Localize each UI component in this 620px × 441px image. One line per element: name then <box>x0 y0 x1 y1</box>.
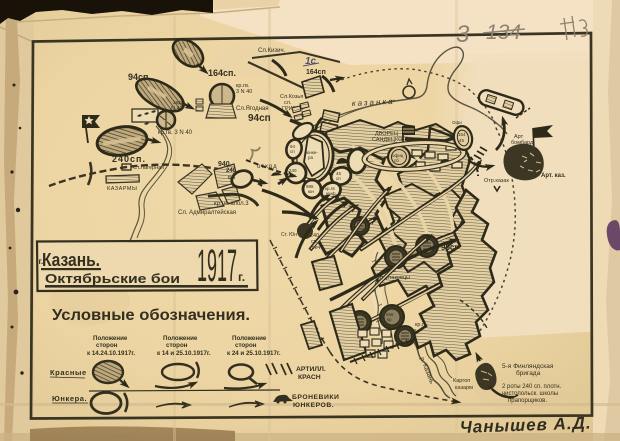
svg-text:Казань.: Казань. <box>42 250 100 270</box>
svg-text:Положение: Положение <box>163 335 198 342</box>
svg-text:Сл. Адмиралтейская: Сл. Адмиралтейская <box>178 209 236 216</box>
svg-text:ра: ра <box>308 155 314 160</box>
svg-text:94сп: 94сп <box>248 113 271 124</box>
svg-text:сторон: сторон <box>166 342 188 349</box>
svg-text:/реч: /реч <box>310 245 320 251</box>
svg-text:164сп: 164сп <box>306 69 326 76</box>
svg-text:3 N 40: 3 N 40 <box>236 89 252 95</box>
svg-text:бригада: бригада <box>516 369 541 377</box>
svg-text:2 роты 240 сп. плотн.: 2 роты 240 сп. плотн. <box>502 384 562 390</box>
svg-text:Октябрьские бои: Октябрьские бои <box>45 271 180 286</box>
svg-text:отход: отход <box>257 164 278 170</box>
svg-text:Юнкера.: Юнкера. <box>52 394 87 403</box>
svg-text:прапорщиков.: прапорщиков. <box>508 398 547 404</box>
svg-text:1917: 1917 <box>197 240 237 291</box>
svg-text:сторон: сторон <box>235 342 257 349</box>
svg-text:кр.гв. 3 N 40: кр.гв. 3 N 40 <box>158 130 193 136</box>
svg-text:кр.гв. апол.3: кр.гв. апол.3 <box>214 201 249 207</box>
svg-text:казарм: казарм <box>455 385 473 391</box>
svg-text:94сп.: 94сп. <box>128 72 151 82</box>
svg-text:сп: сп <box>290 149 295 154</box>
svg-text:КАЗАРМЫ: КАЗАРМЫ <box>107 186 137 192</box>
svg-text:Сл.Ягодная: Сл.Ягодная <box>236 106 269 112</box>
svg-text:Положение: Положение <box>93 335 128 342</box>
svg-text:к 14 и 25.10.1917г.: к 14 и 25.10.1917г. <box>157 350 211 357</box>
svg-text:240сп.: 240сп. <box>112 154 146 164</box>
svg-text:к 24 и 25.10.1917г.: к 24 и 25.10.1917г. <box>227 350 281 357</box>
svg-text:154: 154 <box>458 132 466 137</box>
svg-text:Ст.Лагерная: Ст.Лагерная <box>133 165 164 171</box>
svg-text:3: 3 <box>456 21 470 48</box>
svg-text:240: 240 <box>226 168 237 174</box>
svg-text:БРОНЕВИКИ: БРОНЕВИКИ <box>292 394 339 401</box>
svg-text:сторон: сторон <box>96 342 118 349</box>
svg-text:Офи: Офи <box>452 120 462 125</box>
svg-text:сп: сп <box>228 175 235 181</box>
svg-text:5-я Финляндская: 5-я Финляндская <box>502 363 554 370</box>
svg-text:кр: кр <box>387 317 392 322</box>
svg-text:сб: сб <box>394 158 399 163</box>
svg-text:Сл.Кизич.: Сл.Кизич. <box>258 48 286 54</box>
svg-text:сп: сп <box>336 176 341 181</box>
svg-text:АРТИЛЛ.: АРТИЛЛ. <box>296 366 326 373</box>
svg-text:к 14.24.10.1917г.: к 14.24.10.1917г. <box>87 350 135 357</box>
svg-text:КРАСН: КРАСН <box>298 374 321 381</box>
svg-text:Каргоп: Каргоп <box>453 378 470 384</box>
svg-text:N 40: N 40 <box>171 106 183 112</box>
svg-text:164сп.: 164сп. <box>208 68 236 78</box>
svg-text:ЮНКЕРОВ.: ЮНКЕРОВ. <box>293 402 334 409</box>
svg-text:Красные: Красные <box>50 368 87 377</box>
svg-text:юн: юн <box>308 189 314 194</box>
svg-text:45: 45 <box>459 138 465 143</box>
svg-text:г.: г. <box>238 270 245 284</box>
svg-text:Ст. Юн: Ст. Юн <box>281 232 297 238</box>
svg-text:Положение: Положение <box>232 335 267 342</box>
svg-text:Условные обозначения.: Условные обозначения. <box>52 307 250 324</box>
svg-text:Арт. каз.: Арт. каз. <box>541 173 566 179</box>
svg-text:Отр.казак: Отр.казак <box>484 178 509 184</box>
